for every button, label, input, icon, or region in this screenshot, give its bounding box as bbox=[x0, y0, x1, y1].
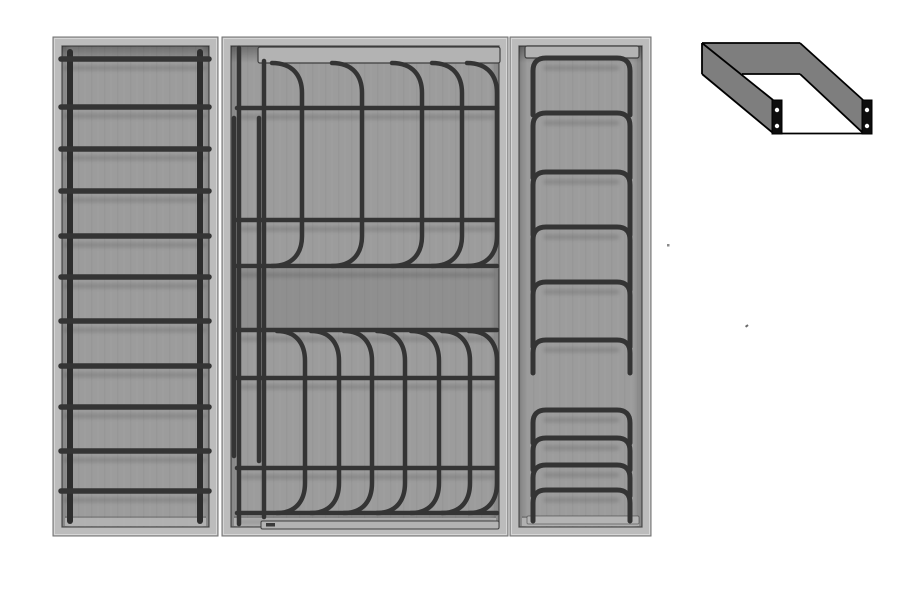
plate-rack-top-rail bbox=[258, 47, 500, 63]
screw-hole bbox=[865, 108, 869, 112]
drawer-insert-catalog-figure bbox=[0, 0, 916, 600]
screw-hole bbox=[775, 124, 779, 128]
speck-1 bbox=[745, 324, 749, 327]
hoop-rack-bottom-ledge bbox=[527, 516, 639, 524]
u-channel-bracket-drawing-right-wall bbox=[800, 43, 863, 133]
u-channel-bracket-drawing-right-end-plate bbox=[862, 100, 872, 134]
background-specks bbox=[667, 244, 749, 328]
screw-hole bbox=[775, 108, 779, 112]
plate-rack-bottom-rail bbox=[261, 521, 499, 529]
u-channel-bracket-drawing-left-end-plate bbox=[772, 100, 782, 134]
screw-hole bbox=[865, 124, 869, 128]
speck-0 bbox=[667, 244, 670, 247]
u-channel-bracket-drawing bbox=[702, 43, 872, 134]
scene-graphic bbox=[0, 0, 916, 600]
